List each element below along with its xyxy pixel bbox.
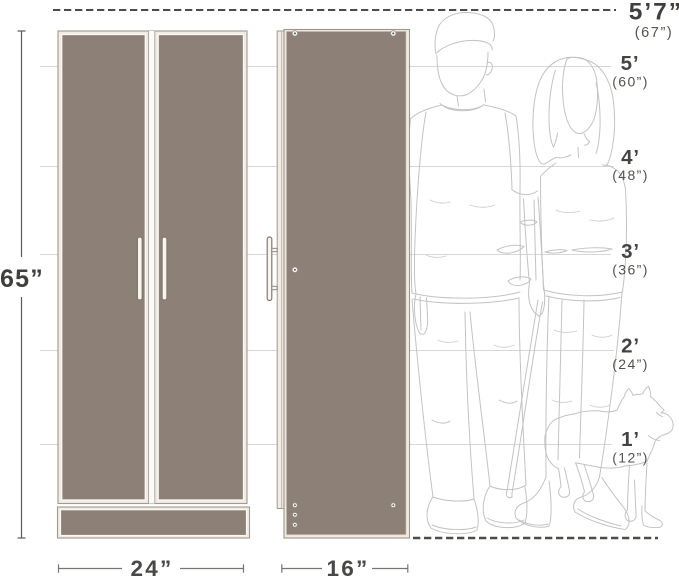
svg-text:24”: 24” [131,556,174,578]
svg-text:(60”): (60”) [612,74,649,90]
svg-text:2’: 2’ [621,335,640,358]
svg-text:16”: 16” [327,556,370,578]
svg-text:1’: 1’ [621,428,640,451]
svg-text:3’: 3’ [621,240,640,263]
svg-text:(48”): (48”) [612,167,649,183]
svg-text:(67”): (67”) [635,25,674,41]
svg-text:(24”): (24”) [612,356,649,372]
svg-text:5’: 5’ [621,52,640,75]
svg-text:5’7”: 5’7” [629,0,679,26]
svg-text:(36”): (36”) [612,262,649,278]
svg-text:4’: 4’ [621,146,640,169]
svg-text:(12”): (12”) [612,450,649,466]
svg-text:65”: 65” [0,265,44,293]
